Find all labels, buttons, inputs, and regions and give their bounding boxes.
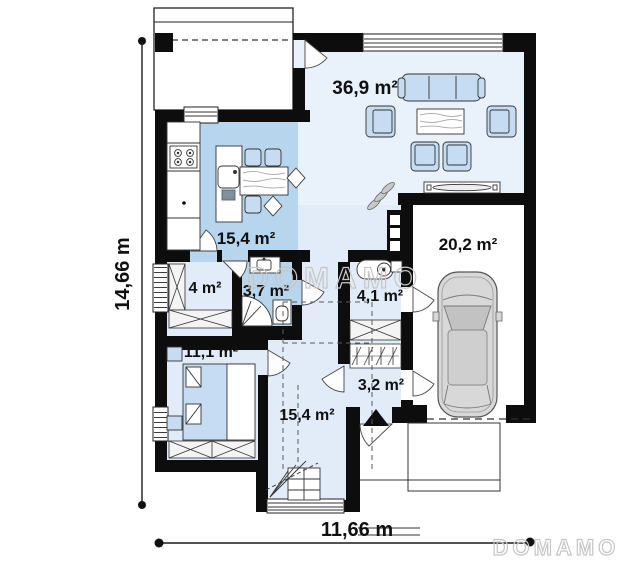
wardrobe-window [153,264,168,312]
coffee-table [417,109,464,134]
car-top-view [433,272,502,417]
bedroom-wardrobe [169,441,255,458]
car-mirror [496,312,502,321]
width-dimension-label: 11,66 m [321,519,393,541]
nightstand [167,416,182,430]
room-label-hall: 15,4 m² [279,407,334,424]
wardrobe-closet-bottom [169,310,232,328]
room-label-kitchen: 15,4 m² [217,229,276,248]
room-label-living: 36,9 m² [332,78,397,99]
stove-icon [170,146,197,168]
room-label-garage: 20,2 m² [439,235,498,254]
armchair-right [487,106,516,137]
room-label-bedroom: 11,1 m² [184,344,238,361]
car-mirror [433,312,439,321]
watermark-center: DOMAMO [247,262,423,295]
tv-sideboard [424,182,500,193]
kitchen-window [184,107,218,123]
kitchen-counter [167,122,200,250]
sofa-three-seat [398,74,485,101]
living-room-window [363,34,503,51]
watermark-corner: DOMAMO [493,535,620,560]
toilet-icon [273,300,291,324]
terrace [154,8,293,110]
width-dimension: 11,66 m [155,519,535,548]
bedroom-window [153,407,168,441]
wardrobe-closet-left [169,264,185,310]
nightstand [167,347,182,361]
height-dimension: 14,66 m [112,37,146,509]
floor-plan-canvas: 36,9 m² 15,4 m² 20,2 m² 4 m² 3,7 m² 4,1 … [0,0,640,563]
room-label-vestibule: 3,2 m² [358,377,404,394]
floor-plan-page: 36,9 m² 15,4 m² 20,2 m² 4 m² 3,7 m² 4,1 … [0,0,640,563]
hall-closet-rail [350,344,401,368]
armchair-left [366,106,395,137]
height-dimension-label: 14,66 m [112,237,134,310]
dining-table [240,167,288,195]
room-label-wardrobe: 4 m² [189,280,222,297]
hall-closet-x [350,320,401,340]
stair-bay-window [267,499,344,513]
